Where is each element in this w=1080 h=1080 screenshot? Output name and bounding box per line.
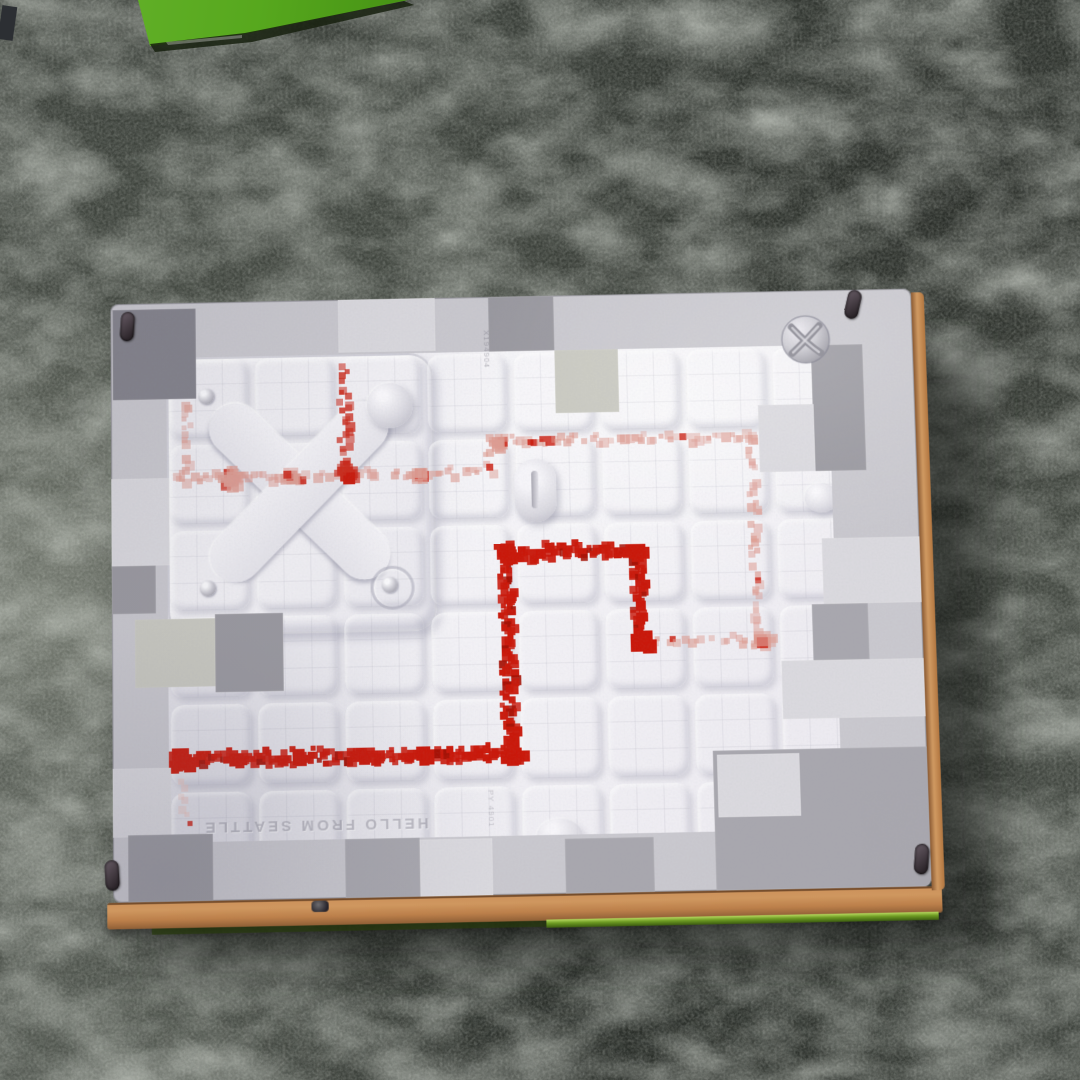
rubber-foot bbox=[913, 843, 929, 875]
border-block bbox=[488, 296, 554, 352]
border-block bbox=[565, 837, 655, 894]
border-block bbox=[112, 566, 156, 615]
bottom-panel: HELLO FROM SEATTLE X194904 PY bbox=[110, 289, 931, 903]
mold-mark-top: X194904 bbox=[482, 330, 492, 368]
border-block bbox=[215, 613, 284, 692]
border-block bbox=[822, 536, 922, 604]
border-block bbox=[345, 838, 421, 899]
xbox-logo-icon bbox=[779, 314, 832, 366]
border-block bbox=[812, 603, 870, 660]
rubber-foot bbox=[104, 860, 120, 891]
border-block bbox=[717, 753, 801, 817]
border-block bbox=[420, 838, 494, 896]
photo-scene: HELLO FROM SEATTLE X194904 PY bbox=[0, 0, 1080, 1080]
border-block bbox=[781, 658, 925, 719]
border-block bbox=[113, 768, 172, 838]
border-block bbox=[338, 298, 436, 353]
bottom-edge-nub bbox=[311, 901, 328, 913]
rubber-foot bbox=[120, 312, 136, 342]
border-block bbox=[554, 349, 619, 413]
mold-mark-bottom: PY 4901 bbox=[486, 789, 496, 827]
xbox-console-bottom: HELLO FROM SEATTLE X194904 PY bbox=[110, 288, 947, 945]
border-block bbox=[135, 618, 216, 688]
border-block bbox=[758, 404, 816, 472]
border-block bbox=[111, 478, 169, 566]
border-block bbox=[128, 834, 213, 903]
